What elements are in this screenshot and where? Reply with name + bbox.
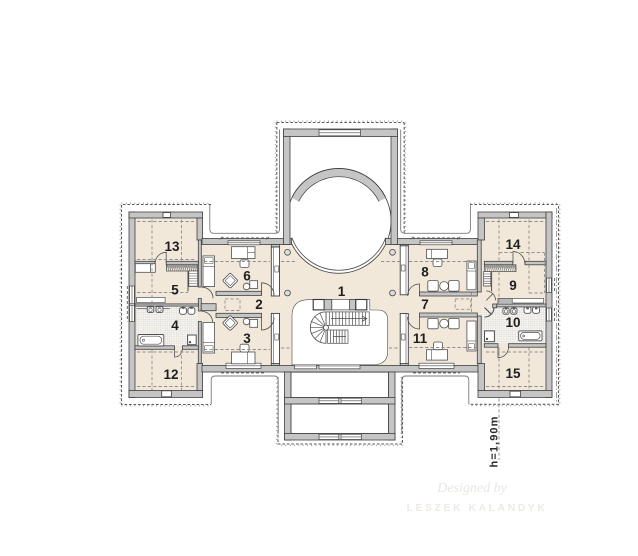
svg-text:Designed by: Designed by <box>436 481 507 496</box>
svg-text:14: 14 <box>505 237 521 252</box>
svg-text:2: 2 <box>255 297 263 312</box>
svg-text:11: 11 <box>413 331 428 346</box>
svg-text:10: 10 <box>505 315 520 330</box>
svg-text:15: 15 <box>505 366 521 381</box>
svg-text:7: 7 <box>421 297 429 312</box>
svg-text:h=1,90m: h=1,90m <box>489 415 501 467</box>
svg-text:3: 3 <box>243 331 251 346</box>
svg-text:13: 13 <box>164 239 180 254</box>
svg-text:1: 1 <box>338 284 346 299</box>
svg-text:12: 12 <box>163 367 178 382</box>
svg-text:LESZEK KALANDYK: LESZEK KALANDYK <box>407 502 548 514</box>
svg-text:6: 6 <box>243 269 251 284</box>
svg-text:8: 8 <box>421 265 429 280</box>
svg-text:4: 4 <box>171 318 179 333</box>
svg-text:9: 9 <box>509 278 517 293</box>
svg-text:5: 5 <box>171 283 179 298</box>
